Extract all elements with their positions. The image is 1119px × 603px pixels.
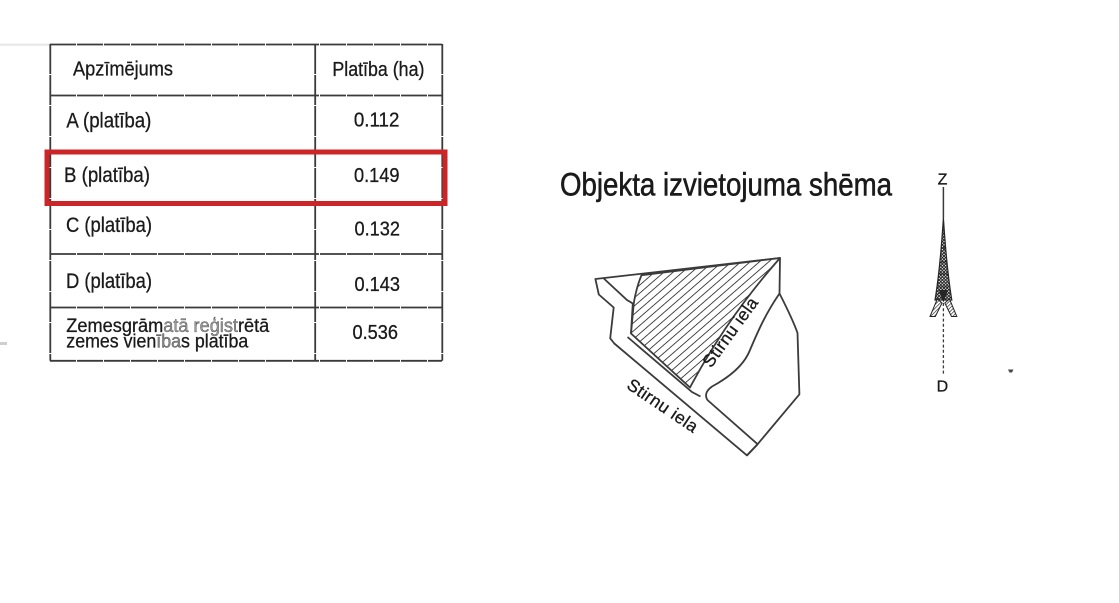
svg-text:C (platība): C (platība)	[66, 214, 152, 237]
svg-text:D: D	[937, 379, 949, 396]
svg-text:D (platība): D (platība)	[66, 270, 152, 293]
svg-text:Platība (ha): Platība (ha)	[332, 59, 424, 81]
svg-text:0.536: 0.536	[353, 322, 399, 344]
svg-text:Objekta izvietojuma shēma: Objekta izvietojuma shēma	[560, 167, 892, 203]
svg-text:zemes vienības platība: zemes vienības platība	[66, 331, 248, 352]
svg-text:Apzīmējums: Apzīmējums	[73, 59, 173, 81]
svg-text:0.149: 0.149	[354, 165, 400, 187]
svg-text:B (platība): B (platība)	[64, 164, 150, 187]
svg-text:Z: Z	[938, 172, 948, 189]
svg-text:0.143: 0.143	[355, 274, 401, 296]
svg-text:0.112: 0.112	[354, 109, 400, 131]
svg-text:0.132: 0.132	[355, 218, 401, 240]
svg-text:A (platība): A (platība)	[66, 109, 151, 132]
